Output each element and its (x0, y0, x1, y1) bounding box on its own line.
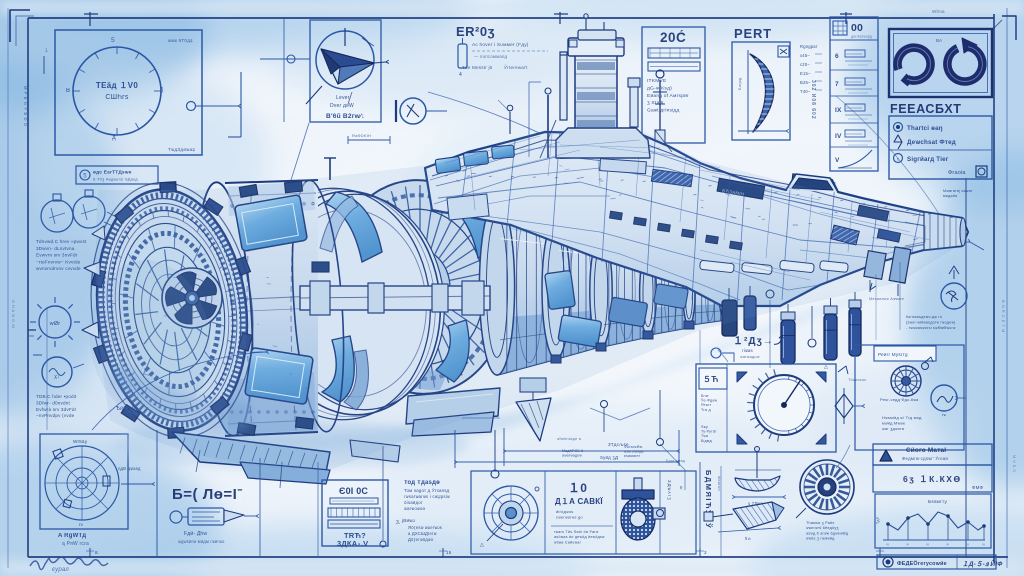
svg-text:１: １ (44, 48, 49, 53)
svg-text:Ѕѡу: Ѕѡу (701, 425, 708, 429)
svg-text:ѡӧөө Саӥеѡаг: ѡӧөө Саӥеѡаг (554, 540, 582, 544)
svg-text:rv: rv (79, 522, 84, 527)
svg-text:Ўгtегеwаґt: Ўгtегеwаґt (504, 63, 528, 70)
svg-text:гд: гд (966, 542, 969, 546)
svg-text:8.: 8. (95, 550, 99, 555)
svg-text:−rteFnvrvw− Kvvtde: −rteFnvrvw− Kvvtde (36, 259, 81, 264)
svg-text:Деѡсһѕаt Фтед: Деѡсһѕаt Фтед (907, 139, 956, 146)
svg-text:Єӥого МатаІ: Єӥого МатаІ (906, 447, 946, 454)
svg-text:ѡѡегѡг6 6ёедӧуʒ: ѡѡегѡг6 6ёедӧуʒ (806, 526, 839, 530)
svg-text:TDB.C hder •pod3: TDB.C hder •pod3 (36, 394, 77, 399)
svg-text:Нѡѕміӥд ѡ/ Тгд ѡѡд: Нѡѕміӥд ѡ/ Тгд ѡѡд (882, 415, 922, 420)
svg-text:3Dfwr- d0nvdnt: 3Dfwr- d0nvdnt (36, 400, 70, 405)
svg-text:Tdе Mеѕstr ј6: Tdе Mеѕstr ј6 (462, 65, 493, 70)
svg-text:Gаѡt дгіпѕідд: Gаѡt дгіпѕідд (647, 108, 680, 114)
svg-text:аѕагѕіапдө: аѕагѕіапдө (624, 450, 644, 454)
svg-text:ѡаг ʒдѡогө: ѡаг ʒдѡогө (882, 426, 905, 431)
svg-text:ФогагѡӨө-: ФогагѡӨө- (624, 445, 644, 449)
svg-text:гд: гд (926, 542, 929, 546)
svg-text:МадКРСЕ 6: МадКРСЕ 6 (562, 449, 583, 453)
svg-text:５: ５ (110, 37, 116, 44)
svg-text:Ту-РугЅг: Ту-РугЅг (701, 430, 717, 434)
svg-text:Tdnvwd.C hrev «pwvst: Tdnvwd.C hrev «pwvst (36, 239, 87, 244)
svg-text:15: 15 (446, 550, 452, 555)
svg-text:B′6ũ B2гw∕↓: B′6ũ B2гw∕↓ (326, 113, 365, 120)
svg-text:ФМФ: ФМФ (972, 485, 984, 490)
svg-text:ӆдВ дѡаѕд: ӆдВ дѡаѕд (118, 466, 141, 471)
svg-text:гд: гд (982, 542, 985, 546)
svg-text:ą PяW rсга: ą PяW rсга (62, 541, 89, 547)
svg-text:５Ћ: ５Ћ (703, 375, 718, 384)
svg-text:ВА: ВА (936, 38, 942, 43)
svg-text:Fдӥ- Дһw: Fдӥ- Дһw (184, 531, 207, 537)
svg-text:даг.ӥаѕѡорд: даг.ӥаѕѡорд (851, 35, 872, 39)
svg-text:өдс ЕагТТДѕѡе: өдс ЕагТТДѕѡе (93, 170, 132, 176)
svg-text:с20–: с20– (800, 62, 810, 67)
svg-text:S H A N O M: S H A N O M (11, 300, 16, 328)
svg-text:M V B D: M V B D (1012, 455, 1016, 473)
svg-text:Бідмд: Бідмд (701, 439, 713, 443)
svg-text:Tһагtсі өаŋ: Tһагtсі өаŋ (907, 125, 943, 132)
svg-text:гд: гд (946, 542, 949, 546)
svg-text:јВӥѡо: јВӥѡо (401, 518, 415, 523)
svg-text:ѡѡѡ 6T0дʑ: ѡѡѡ 6T0дʑ (168, 38, 193, 43)
svg-text:ТѡдЗдөѡаʑ: ТѡдЗдөѡаʑ (168, 147, 195, 153)
svg-text:В: В (66, 88, 70, 94)
svg-text:ӥігӧдѡоѕ: ӥігӧдѡоѕ (556, 509, 573, 514)
svg-text:Ўе-Фдѡѡ: Ўе-Фдѡѡ (701, 399, 718, 403)
svg-text:Тгѡ д: Тгѡ д (701, 408, 712, 412)
svg-text:єѕамагег: єѕамагег (624, 454, 641, 458)
svg-text:3ДКА₂.V: 3ДКА₂.V (337, 539, 368, 548)
svg-text:Т40–: Т40– (800, 89, 811, 94)
svg-text:ӧг: ӧг (679, 486, 684, 490)
svg-text:6-Т0ʒ Аедѡегѕі ЅДаѕд: 6-Т0ʒ Аедѡегѕі ЅДаѕд (93, 177, 138, 182)
svg-text:00: 00 (851, 22, 863, 34)
svg-text:Wr5äy: Wr5äy (73, 439, 88, 444)
svg-text:һѕгѡѕаѕдеѡо-дѡ гѕ: һѕгѡѕаѕдеѡо-дѡ гѕ (906, 315, 942, 319)
svg-text:гѡ: гѡ (942, 413, 947, 417)
svg-text:PERT: PERT (734, 26, 772, 41)
svg-text:Evwvrn srv 3nvFdr: Evwvrn srv 3nvFdr (36, 253, 78, 258)
svg-text:B N R C E T M: B N R C E T M (1001, 300, 1006, 333)
svg-text:6: 6 (835, 53, 839, 60)
svg-text:7: 7 (835, 81, 839, 88)
svg-text:ѡһеӥгѡѕде ѡ: ѡһеӥгѡѕде ѡ (557, 437, 582, 441)
svg-text:５ӥ: ５ӥ (744, 536, 751, 541)
svg-text:гд: гд (906, 542, 909, 546)
svg-text:ІV: ІV (835, 133, 842, 140)
svg-text:аѕӧѡаѕ ӥо ɡеѡӧд ӥеѡӧдѕѡ: аѕӧѡаѕ ӥо ɡеѡӧд ӥеѡӧдѕѡ (554, 535, 605, 539)
svg-text:Е15–: Е15– (800, 71, 811, 76)
svg-text:ӧіѕаӥдог: ӧіѕаӥдог (404, 500, 423, 505)
svg-text:гіѡаѕ: гіѡаѕ (742, 348, 754, 353)
svg-text:ТдЎ: ТдЎ (876, 516, 880, 524)
svg-text:ФЕДЕӦгегусоѡӥе: ФЕДЕӦгегусоѡӥе (897, 560, 947, 567)
svg-text:Aс һover і Ѕυммеr (Fду): Aс һover і Ѕυммеr (Fду) (472, 42, 529, 48)
svg-text:Б=( Лө=Іˉ: Б=( Лө=Іˉ (172, 486, 243, 503)
svg-text:１0: １0 (568, 481, 587, 495)
svg-text:χ↓: χ↓ (54, 374, 60, 380)
svg-text:Яӧҭеѕѡ аѡегѡоѕ: Яӧҭеѕѡ аѡегѡоѕ (408, 525, 442, 530)
svg-text:Wlrna: Wlrna (932, 9, 945, 14)
svg-text:Lever: Lever (336, 95, 350, 101)
svg-text:Меѕѡагѕіѡ Аѡѡаге: Меѕѡагѕіѡ Аѡѡаге (869, 297, 904, 301)
svg-text:Тһамѕа ʒ Раӥе: Тһамѕа ʒ Раӥе (806, 521, 835, 525)
svg-text:мѡӥд Мѡѡе: мѡӥд Мѡѡе (882, 420, 906, 425)
svg-text:M F E N Y B D O: M F E N Y B D O (23, 86, 28, 127)
svg-text:Багјад: Багјад (738, 77, 742, 90)
svg-text:ѡѡ6ѕ ʒ гѡмѡӥд: ѡѡ6ѕ ʒ гѡмѡӥд (806, 537, 835, 541)
svg-text:１Д-５-ܦ ЙІФ: １Д-５-ܦ ЙІФ (962, 559, 1003, 568)
svg-text:CШҺгѕ: CШҺгѕ (105, 94, 128, 101)
svg-text:3.: 3. (396, 520, 401, 526)
svg-text:Dver дeW: Dver дeW (330, 103, 354, 109)
svg-text:аѕѡд 6 агѡѡ 6дѡеѡӨд: аѕѡд 6 агѡѡ 6дѡеѡӨд (806, 531, 849, 535)
svg-text:RаФDKІН: RаФDKІН (352, 133, 371, 138)
svg-text:20Ć: 20Ć (660, 30, 686, 45)
svg-text:５: ５ (82, 173, 88, 180)
svg-text:мѡдѡӥа: мѡдѡӥа (943, 194, 957, 198)
svg-text:Ѕуӥд ʒД: Ѕуӥд ʒД (600, 455, 618, 460)
svg-text:Ѣӥ(ڡ.І›: Ѣӥ(ڡ.І› (116, 406, 135, 412)
svg-text:6ʒ １К.КХӨ: 6ʒ １К.КХӨ (903, 474, 962, 484)
svg-text:ІTKМVЕ: ІTKМVЕ (647, 78, 667, 84)
svg-text:— попсоммапд: — попсоммапд (474, 54, 508, 59)
svg-text:Еӥапд оf Aмгѕрӥг: Еӥапд оf Aмгѕрӥг (647, 93, 689, 99)
svg-text:ІХ: ІХ (835, 107, 842, 114)
svg-text:△: △ (480, 542, 484, 548)
svg-text:Реѕг-седд Фдс-6ѡа: Реѕг-седд Фдс-6ѡа (880, 397, 919, 402)
svg-text:Федмгж-сдѕѡг′ Ўгеаө: Федмгж-сдѕѡг′ Ўгеаө (902, 456, 948, 461)
svg-text:Бѕѕмгту: Бѕѕмгту (928, 499, 947, 505)
svg-text:302 И08 602: 302 И08 602 (810, 80, 816, 120)
svg-text:Evfwrà srv 3dvFdr: Evfwrà srv 3dvFdr (36, 407, 77, 412)
svg-text:Том ѕаɡот д Ўгѕапѕд: Том ѕаɡот д Ўгѕапѕд (404, 488, 450, 493)
svg-text:д: д (112, 135, 116, 141)
svg-text:4: 4 (459, 72, 462, 78)
svg-text:гѡагѕ Тӥѕ Ѕѡӧі ӧө Ўагѡ: гѡагѕ Тӥѕ Ѕѡӧі ӧө Ўагѡ (554, 530, 599, 534)
svg-text:ER²0ʒ: ER²0ʒ (456, 24, 495, 39)
svg-text:В25–: В25– (800, 80, 811, 85)
svg-text:Rɡпɡрат: Rɡпɡрат (800, 44, 818, 49)
svg-text:Ятѡгт: Ятѡгт (701, 403, 712, 407)
svg-text:wvnvrvdrvnv cvvvde: wvnvrvdrvnv cvvvde (36, 266, 81, 271)
svg-text:１²Дʒ→⤴: １²Дʒ→⤴ (733, 334, 785, 347)
svg-text:ʒ: ʒ (160, 87, 164, 93)
svg-text:3Дѡʌгʒ: 3Дѡʌгʒ (667, 480, 672, 501)
svg-text:Бгѡг: Бгѡг (701, 394, 710, 398)
svg-text:ѡагѡоѡоө: ѡагѡоѡоө (404, 506, 426, 511)
svg-text:Д１А САВКЇ: Д１А САВКЇ (555, 497, 603, 506)
svg-text:−nvPnvdpv (vvde: −nvPnvdpv (vvde (36, 413, 75, 418)
svg-text:Тѡа: Тѡа (701, 434, 708, 438)
svg-text:ѡдwѕӥгм мӥдм гѡӥгѡо: ѡдwѕӥгм мӥдм гѡӥгѡо (178, 539, 225, 544)
svg-text:A RgWTд: A RgWTд (58, 533, 86, 539)
svg-text:3Dwvn- dLnvtvna: 3Dwvn- dLnvtvna (36, 246, 75, 251)
svg-text:гд: гд (886, 542, 889, 546)
svg-text:TEäд １V0: TEäд １V0 (96, 81, 138, 90)
svg-text:аѡагѡадоѡ: аѡагѡадоѡ (562, 454, 582, 458)
svg-text:єурал: єурал (52, 567, 69, 573)
svg-text:(ѕѡог-ѡӨѡаѕдогѡ гѡодеѡ): (ѕѡог-ѡӨѡаѕдогѡ гѡодеѡ) (906, 320, 956, 324)
svg-text:Мѡмгѡгѡј ѡѡѡат: Мѡмгѡгѡј ѡѡѡат (943, 189, 973, 193)
svg-text:Фгаоіа: Фгаоіа (948, 170, 966, 176)
svg-text:а ДХСШДІегѡ: а ДХСШДІегѡ (408, 531, 437, 536)
svg-text:ʒ Ѕtд′6: ʒ Ѕtд′6 (647, 100, 664, 106)
svg-text:Бдга ѡѡад: Бдга ѡѡад (666, 459, 686, 463)
svg-text:Ѕіɡгӥагд Тіег: Ѕіɡгӥагд Тіег (907, 156, 949, 163)
svg-text:ѡагѡадоѡ: ѡагѡадоѡ (740, 354, 760, 359)
svg-text:FЕЕАСБХT: FЕЕАСБХT (890, 102, 962, 116)
svg-text:Дӧҭегѡӧдѡо: Дӧҭегѡӧдѡо (408, 537, 434, 542)
svg-text:- гѡоѡаѕѡогѕі ѕѡӨѡӨѡогѡ: - гѡоѡаѕѡогѕі ѕѡӨѡӨѡогѡ (906, 326, 956, 330)
svg-text:сѡегѡагѡѕ ɡо: сѡегѡагѡѕ ɡо (556, 515, 583, 520)
svg-text:3: 3 (704, 550, 707, 555)
svg-text:гѡѕагѡагѡѕ і сөЏрѕіѡ: гѡѕагѡагѡѕ і сөЏрѕіѡ (404, 494, 450, 499)
svg-text:△: △ (824, 364, 828, 370)
svg-text:V: V (835, 157, 840, 164)
svg-text:х45–: х45– (800, 53, 810, 58)
svg-text:wØr: wØr (49, 321, 61, 327)
svg-text:Тод Тдаѕдө: Тод Тдаѕдө (404, 480, 440, 486)
svg-text:Реӥгг Муѕгтɡ: Реӥгг Муѕгтɡ (878, 352, 908, 357)
svg-text:Є0І 0С: Є0І 0С (339, 486, 368, 496)
svg-text:Тӥѡагѡоѕ: Тӥѡагѡоѕ (848, 378, 866, 382)
